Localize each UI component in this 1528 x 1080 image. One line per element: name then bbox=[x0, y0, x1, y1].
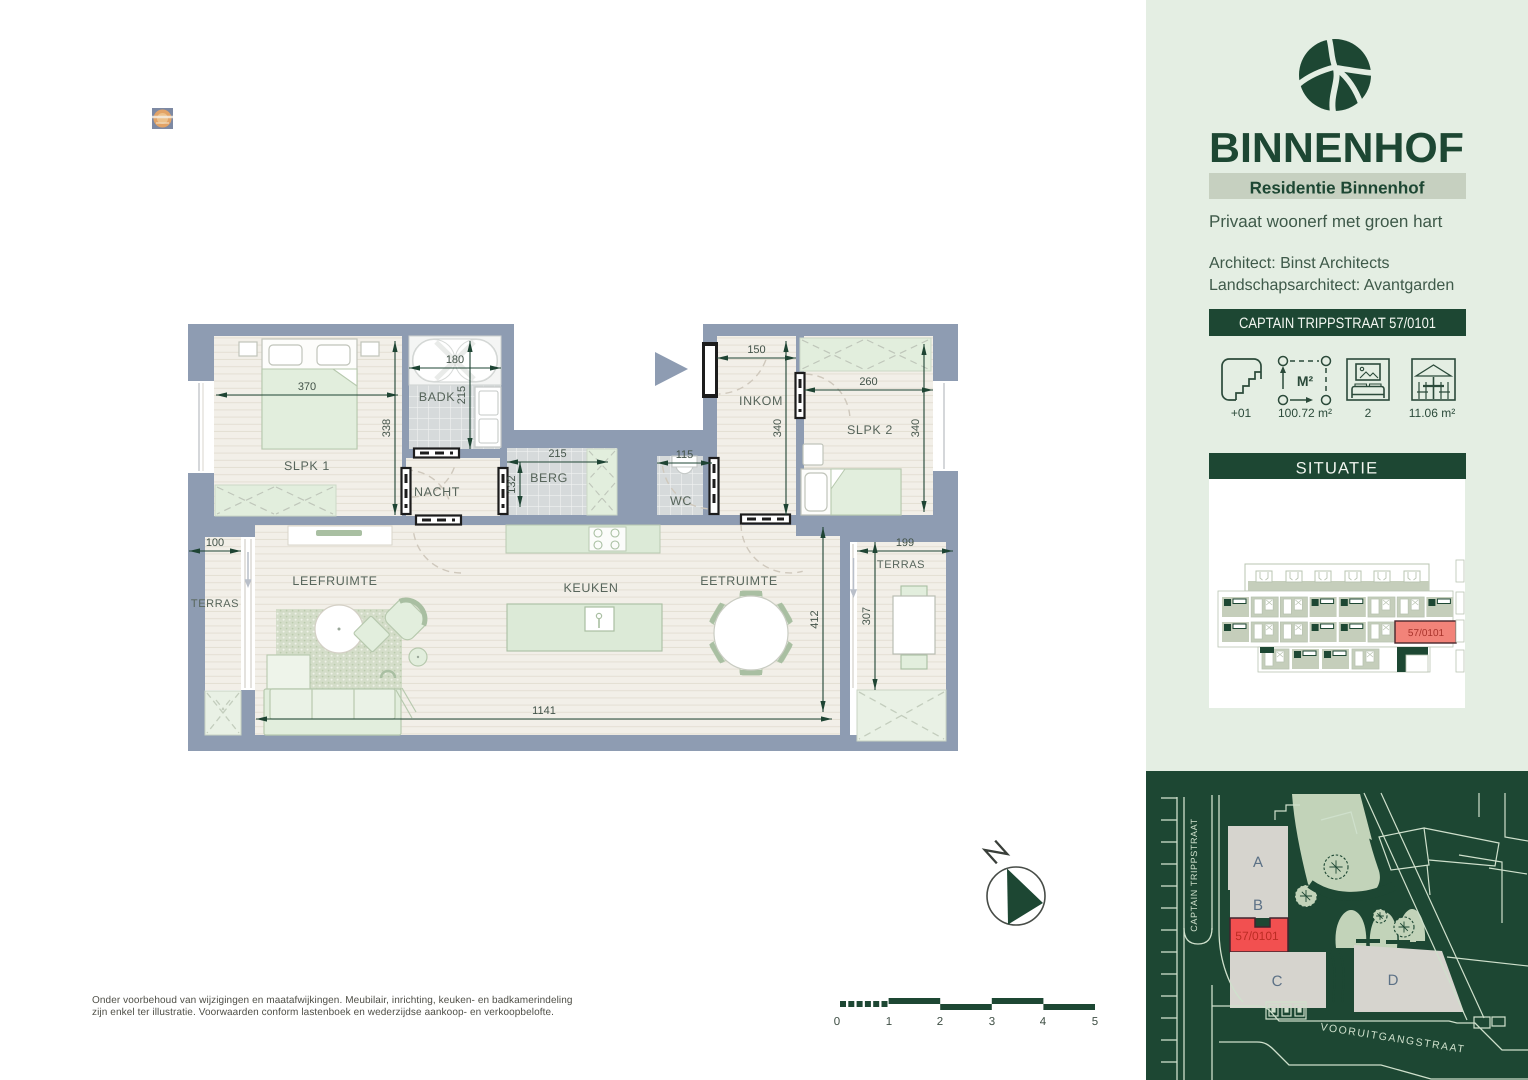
svg-text:EETRUIMTE: EETRUIMTE bbox=[700, 574, 778, 588]
svg-text:215: 215 bbox=[548, 448, 566, 460]
svg-text:A: A bbox=[1253, 854, 1263, 871]
svg-text:199: 199 bbox=[896, 537, 914, 549]
svg-text:TERRAS: TERRAS bbox=[191, 598, 239, 610]
svg-text:B: B bbox=[1253, 897, 1263, 914]
svg-text:NACHT: NACHT bbox=[414, 485, 460, 499]
svg-text:115: 115 bbox=[676, 449, 694, 461]
svg-text:0: 0 bbox=[834, 1016, 840, 1028]
svg-text:412: 412 bbox=[809, 610, 821, 628]
svg-text:4: 4 bbox=[1040, 1016, 1047, 1028]
svg-text:BADK: BADK bbox=[419, 390, 456, 404]
svg-text:100.72 m²: 100.72 m² bbox=[1278, 406, 1332, 420]
svg-text:2: 2 bbox=[937, 1016, 943, 1028]
svg-text:338: 338 bbox=[381, 419, 393, 437]
svg-text:2: 2 bbox=[1365, 406, 1372, 420]
svg-text:307: 307 bbox=[861, 607, 873, 625]
svg-text:LEEFRUIMTE: LEEFRUIMTE bbox=[292, 574, 377, 588]
svg-text:WC: WC bbox=[670, 494, 692, 508]
svg-text:3: 3 bbox=[989, 1016, 995, 1028]
svg-text:SLPK 2: SLPK 2 bbox=[847, 423, 893, 437]
svg-text:KEUKEN: KEUKEN bbox=[563, 581, 618, 595]
svg-text:150: 150 bbox=[747, 344, 765, 356]
svg-text:zijn enkel ter illustratie. Vo: zijn enkel ter illustratie. Voorwaarden … bbox=[92, 1007, 554, 1018]
svg-text:Onder voorbehoud van wijziging: Onder voorbehoud van wijzigingen en maat… bbox=[92, 995, 573, 1006]
svg-text:INKOM: INKOM bbox=[739, 394, 783, 408]
svg-text:340: 340 bbox=[772, 419, 784, 437]
svg-text:215: 215 bbox=[456, 386, 468, 404]
svg-text:+01: +01 bbox=[1231, 406, 1252, 420]
svg-text:11.06 m²: 11.06 m² bbox=[1409, 406, 1455, 420]
svg-text:CAPTAIN TRIPPSTRAAT 57/0101: CAPTAIN TRIPPSTRAAT 57/0101 bbox=[1239, 315, 1436, 332]
svg-text:1141: 1141 bbox=[532, 705, 556, 717]
svg-text:D: D bbox=[1388, 972, 1399, 989]
svg-text:370: 370 bbox=[298, 381, 316, 393]
svg-text:BERG: BERG bbox=[530, 471, 568, 485]
svg-text:SITUATIE: SITUATIE bbox=[1296, 460, 1379, 478]
svg-text:340: 340 bbox=[910, 419, 922, 437]
svg-text:180: 180 bbox=[446, 354, 464, 366]
svg-text:Privaat woonerf met groen hart: Privaat woonerf met groen hart bbox=[1209, 212, 1443, 231]
svg-text:100: 100 bbox=[206, 537, 224, 549]
svg-text:5: 5 bbox=[1092, 1016, 1098, 1028]
svg-text:Residentie Binnenhof: Residentie Binnenhof bbox=[1250, 179, 1425, 198]
svg-text:M²: M² bbox=[1297, 373, 1314, 389]
svg-text:57/0101: 57/0101 bbox=[1408, 628, 1445, 639]
svg-text:BINNENHOF: BINNENHOF bbox=[1209, 124, 1464, 171]
svg-text:C: C bbox=[1272, 973, 1283, 990]
svg-text:TERRAS: TERRAS bbox=[877, 559, 925, 571]
svg-text:132: 132 bbox=[506, 475, 518, 493]
svg-text:1: 1 bbox=[886, 1016, 892, 1028]
svg-text:CAPTAIN TRIPPSTRAAT: CAPTAIN TRIPPSTRAAT bbox=[1189, 818, 1199, 931]
svg-text:SLPK 1: SLPK 1 bbox=[284, 459, 330, 473]
svg-text:57/0101: 57/0101 bbox=[1235, 929, 1279, 943]
svg-text:Architect: Binst Architects: Architect: Binst Architects bbox=[1209, 255, 1390, 272]
svg-text:Landschapsarchitect: Avantgard: Landschapsarchitect: Avantgarden bbox=[1209, 277, 1454, 294]
svg-text:260: 260 bbox=[859, 376, 877, 388]
